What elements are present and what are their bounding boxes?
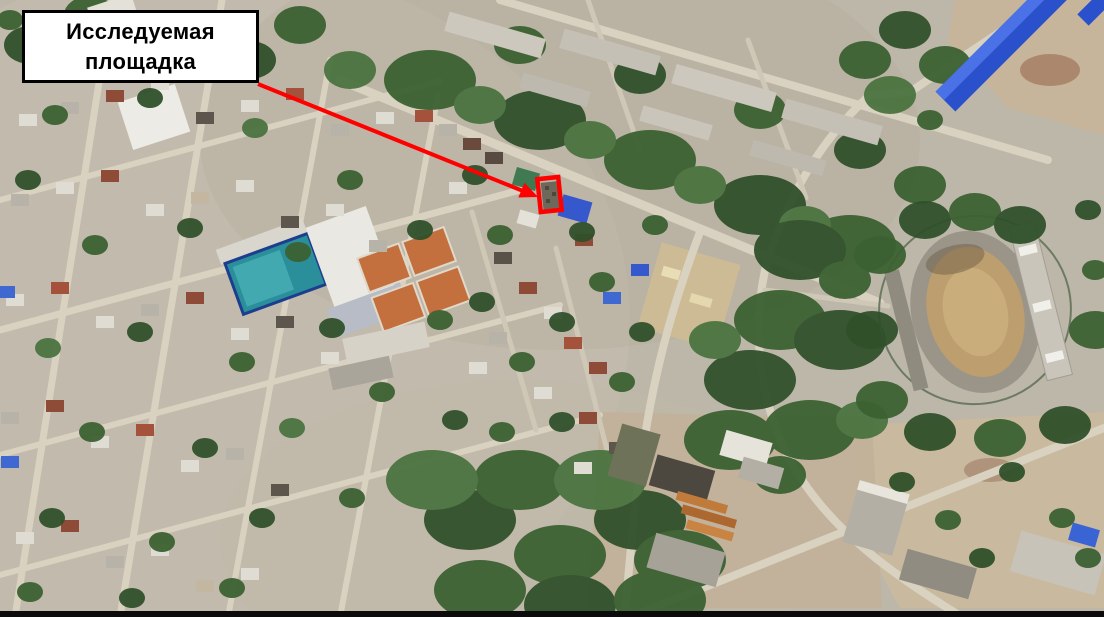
study-site-label: Исследуемая площадка: [22, 10, 259, 83]
satellite-map: [0, 0, 1104, 617]
study-site-label-line1: Исследуемая: [66, 17, 215, 47]
study-site-label-line2: площадка: [85, 47, 196, 77]
bottom-letterbox: [0, 611, 1104, 617]
study-site-building: [541, 181, 560, 210]
figure-study-site-map: Исследуемая площадка: [0, 0, 1104, 617]
